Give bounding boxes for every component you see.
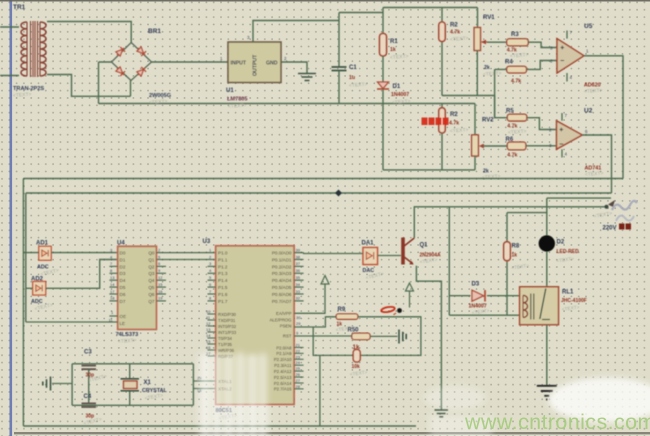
- svg-text:ALE/PROG: ALE/PROG: [270, 318, 293, 323]
- svg-text:D3: D3: [472, 282, 480, 288]
- svg-text:GND: GND: [266, 61, 278, 67]
- svg-text:T1/P35: T1/P35: [218, 342, 232, 347]
- svg-text:13: 13: [206, 327, 211, 332]
- svg-text:Q5: Q5: [148, 285, 155, 290]
- svg-text:P2.1/A9: P2.1/A9: [276, 351, 292, 356]
- svg-text:www.cntronics.com: www.cntronics.com: [464, 410, 650, 434]
- svg-text:4.7k: 4.7k: [511, 79, 521, 85]
- svg-text:D0: D0: [120, 251, 126, 256]
- svg-text:P0.7/AD7: P0.7/AD7: [272, 299, 292, 304]
- svg-text:P2.0/A8: P2.0/A8: [276, 345, 292, 350]
- svg-text:Q1: Q1: [420, 242, 429, 248]
- svg-text:P1.4: P1.4: [218, 278, 228, 283]
- svg-text:BR1: BR1: [148, 28, 161, 35]
- svg-text:P0.5/AD5: P0.5/AD5: [272, 285, 292, 290]
- svg-text:EA/VPP: EA/VPP: [276, 311, 292, 316]
- svg-text:30: 30: [296, 315, 301, 320]
- svg-text:26: 26: [296, 372, 301, 377]
- svg-text:INT1/P33: INT1/P33: [218, 330, 237, 335]
- svg-text:1k: 1k: [337, 321, 343, 327]
- svg-text:U5: U5: [584, 23, 593, 30]
- svg-text:JHC-4100F: JHC-4100F: [561, 298, 587, 304]
- svg-text:R8: R8: [512, 244, 520, 250]
- svg-text:28: 28: [296, 384, 301, 389]
- svg-text:32: 32: [296, 296, 301, 301]
- svg-text:14: 14: [110, 282, 115, 287]
- svg-text:R3: R3: [511, 32, 519, 38]
- svg-text:TXD/P31: TXD/P31: [218, 318, 236, 323]
- svg-text:P1.7: P1.7: [218, 299, 228, 304]
- svg-text:D2: D2: [120, 264, 126, 269]
- svg-text:D7: D7: [120, 299, 126, 304]
- svg-text:15: 15: [158, 282, 163, 287]
- svg-text:4.7k: 4.7k: [449, 121, 459, 127]
- svg-text:10k: 10k: [352, 364, 361, 370]
- svg-text:P0.4/AD4: P0.4/AD4: [272, 278, 292, 283]
- svg-text:1N4007: 1N4007: [469, 304, 487, 310]
- svg-text:Q3: Q3: [148, 271, 155, 276]
- svg-text:29: 29: [296, 321, 301, 326]
- svg-text:R1: R1: [390, 39, 398, 45]
- svg-text:RV2: RV2: [482, 118, 494, 124]
- svg-text:D3: D3: [120, 271, 126, 276]
- svg-text:C4: C4: [84, 394, 92, 400]
- svg-text:P2.5/A13: P2.5/A13: [274, 375, 292, 380]
- svg-text:17: 17: [110, 289, 115, 294]
- svg-text:LM7805: LM7805: [227, 97, 248, 103]
- svg-text:Q4: Q4: [148, 278, 155, 283]
- svg-text:1k: 1k: [512, 253, 518, 259]
- svg-text:33: 33: [296, 289, 301, 294]
- svg-text:C3: C3: [84, 350, 92, 356]
- svg-text:2N2904A: 2N2904A: [420, 252, 442, 258]
- svg-text:WR/P36: WR/P36: [218, 348, 235, 353]
- svg-text:27: 27: [296, 378, 301, 383]
- svg-text:Q6: Q6: [148, 292, 155, 297]
- svg-text:12: 12: [158, 275, 163, 280]
- svg-text:LE: LE: [120, 321, 126, 326]
- svg-text:23: 23: [296, 354, 301, 359]
- svg-text:4.7k: 4.7k: [507, 153, 517, 159]
- svg-text:RXD/P30: RXD/P30: [218, 312, 237, 317]
- svg-text:10: 10: [206, 309, 211, 314]
- svg-text:P0.2/AD2: P0.2/AD2: [272, 264, 292, 269]
- svg-text:P1.2: P1.2: [218, 264, 228, 269]
- svg-text:Q1: Q1: [148, 257, 155, 262]
- svg-text:14: 14: [206, 333, 211, 338]
- svg-text:RST: RST: [283, 333, 292, 338]
- svg-text:RL1: RL1: [562, 289, 574, 295]
- svg-text:21: 21: [296, 343, 301, 348]
- svg-text:P2.3/A11: P2.3/A11: [274, 363, 292, 368]
- svg-text:P2.7/A15: P2.7/A15: [274, 387, 292, 392]
- svg-text:U1: U1: [226, 88, 234, 94]
- svg-text:2W005G: 2W005G: [149, 93, 171, 99]
- svg-text:P2.6/A14: P2.6/A14: [274, 381, 292, 386]
- svg-text:16: 16: [206, 345, 211, 350]
- svg-text:1k: 1k: [390, 47, 396, 53]
- svg-text:Q2: Q2: [148, 264, 155, 269]
- svg-text:OE: OE: [120, 314, 127, 319]
- svg-text:P2.2/A10: P2.2/A10: [274, 357, 292, 362]
- svg-text:220V: 220V: [603, 226, 617, 232]
- svg-text:12: 12: [206, 321, 211, 326]
- svg-text:25: 25: [296, 366, 301, 371]
- svg-text:D2: D2: [557, 239, 565, 245]
- svg-text:2k: 2k: [484, 65, 490, 71]
- svg-text:P1.1: P1.1: [218, 257, 228, 262]
- svg-text:D1: D1: [393, 84, 401, 90]
- svg-text:INPUT: INPUT: [231, 61, 247, 67]
- svg-text:16: 16: [158, 289, 163, 294]
- svg-text:TR1: TR1: [13, 4, 26, 11]
- svg-text:Q0: Q0: [148, 251, 155, 256]
- svg-text:39: 39: [296, 247, 301, 252]
- svg-text:INT0/P32: INT0/P32: [218, 324, 237, 329]
- svg-text:OUTPUT: OUTPUT: [253, 54, 259, 76]
- svg-text:P1.0: P1.0: [218, 251, 228, 256]
- svg-text:22: 22: [296, 348, 301, 353]
- svg-text:P0.3/AD3: P0.3/AD3: [272, 271, 292, 276]
- svg-text:Q7: Q7: [148, 299, 155, 304]
- svg-text:CRYSTAL: CRYSTAL: [142, 388, 168, 394]
- svg-text:18: 18: [110, 296, 115, 301]
- svg-text:P0.1/AD1: P0.1/AD1: [272, 257, 292, 262]
- svg-text:D5: D5: [120, 285, 126, 290]
- svg-text:15: 15: [206, 339, 211, 344]
- svg-text:P1.5: P1.5: [218, 285, 228, 290]
- svg-text:R9: R9: [338, 307, 346, 313]
- svg-text:RV1: RV1: [483, 15, 495, 21]
- svg-text:P0.0/AD0: P0.0/AD0: [272, 251, 292, 256]
- svg-text:P1.3: P1.3: [218, 271, 228, 276]
- svg-text:36: 36: [296, 268, 301, 273]
- svg-text:U2: U2: [584, 108, 593, 115]
- svg-text:D6: D6: [120, 292, 126, 297]
- svg-text:1u: 1u: [349, 75, 355, 81]
- svg-text:P2.4/A12: P2.4/A12: [274, 369, 292, 374]
- svg-text:13: 13: [110, 275, 115, 280]
- svg-text:19: 19: [158, 296, 163, 301]
- svg-text:LED-RED: LED-RED: [557, 249, 580, 255]
- svg-text:PSEN: PSEN: [280, 324, 292, 329]
- svg-text:DA1: DA1: [362, 241, 375, 247]
- svg-text:R2: R2: [450, 112, 458, 118]
- svg-text:T0/P34: T0/P34: [218, 336, 232, 341]
- svg-text:4.7k: 4.7k: [450, 30, 460, 36]
- svg-text:35: 35: [296, 275, 301, 280]
- svg-text:P0.6/AD6: P0.6/AD6: [272, 292, 292, 297]
- svg-text:38: 38: [296, 254, 301, 259]
- svg-text:1N4007: 1N4007: [391, 92, 409, 98]
- svg-text:34: 34: [296, 282, 301, 287]
- svg-text:P1.6: P1.6: [218, 292, 228, 297]
- svg-text:37: 37: [296, 261, 301, 266]
- svg-text:R2: R2: [450, 23, 458, 29]
- svg-text:C1: C1: [349, 65, 357, 71]
- svg-text:AD1: AD1: [36, 241, 49, 247]
- svg-text:R4: R4: [505, 60, 513, 66]
- svg-text:U3: U3: [203, 239, 211, 245]
- svg-text:D1: D1: [120, 257, 126, 262]
- svg-text:24: 24: [296, 360, 301, 365]
- svg-text:D4: D4: [120, 278, 126, 283]
- svg-text:X1: X1: [144, 380, 152, 386]
